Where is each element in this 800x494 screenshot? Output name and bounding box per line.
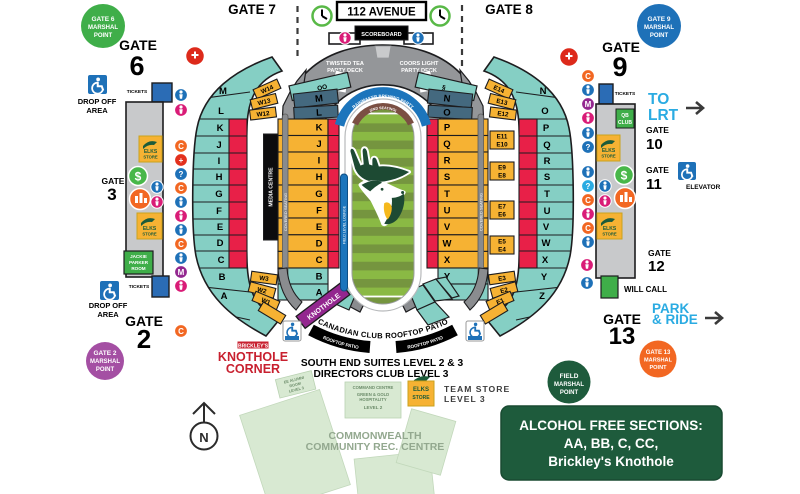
svg-text:T: T xyxy=(444,189,450,200)
svg-text:Y: Y xyxy=(541,272,548,283)
svg-text:S: S xyxy=(544,172,550,183)
svg-text:LEVEL 3: LEVEL 3 xyxy=(444,394,486,404)
svg-text:ROOM: ROOM xyxy=(131,266,145,271)
svg-text:N: N xyxy=(199,430,208,445)
svg-text:G: G xyxy=(315,189,322,200)
svg-text:C: C xyxy=(218,255,225,266)
svg-text:V: V xyxy=(444,222,451,233)
svg-text:2: 2 xyxy=(137,324,151,354)
svg-text:O: O xyxy=(443,107,451,118)
svg-text:M: M xyxy=(314,93,323,105)
svg-text:COMMAND CENTRE: COMMAND CENTRE xyxy=(353,385,394,390)
svg-text:FIELD: FIELD xyxy=(560,373,579,380)
svg-text:GATE 7: GATE 7 xyxy=(228,2,276,17)
svg-text:GATE: GATE xyxy=(646,165,669,175)
svg-text:U: U xyxy=(444,205,451,216)
svg-text:TO: TO xyxy=(648,91,669,108)
svg-text:T: T xyxy=(544,189,550,200)
svg-text:F: F xyxy=(216,206,222,217)
svg-text:GATE 9: GATE 9 xyxy=(648,16,671,23)
svg-text:DROP OFF: DROP OFF xyxy=(78,97,117,106)
svg-text:MEDIA CENTRE: MEDIA CENTRE xyxy=(269,167,275,207)
svg-text:ELKS: ELKS xyxy=(413,387,429,393)
svg-text:$: $ xyxy=(621,169,628,183)
svg-text:POINT: POINT xyxy=(96,367,115,373)
svg-text:WILL CALL: WILL CALL xyxy=(624,285,667,294)
svg-text:H: H xyxy=(316,172,323,183)
svg-text:Brickley's Knothole: Brickley's Knothole xyxy=(548,454,674,469)
svg-text:A: A xyxy=(221,291,228,302)
svg-text:GATE: GATE xyxy=(646,125,669,135)
svg-text:TICKETS: TICKETS xyxy=(129,284,150,290)
svg-text:TEAM STORE: TEAM STORE xyxy=(444,384,510,394)
svg-text:K: K xyxy=(316,123,323,134)
svg-text:C: C xyxy=(178,327,184,336)
svg-text:TICKETS: TICKETS xyxy=(127,89,148,95)
svg-text:POINT: POINT xyxy=(650,33,669,39)
svg-text:TWISTED TEA: TWISTED TEA xyxy=(326,61,364,67)
svg-text:LRT: LRT xyxy=(648,107,679,124)
svg-text:E6: E6 xyxy=(498,212,506,219)
svg-text:SCOREBOARD: SCOREBOARD xyxy=(361,32,401,38)
svg-text:GATE 13: GATE 13 xyxy=(646,350,671,356)
svg-text:Q: Q xyxy=(443,139,450,150)
svg-text:112 AVENUE: 112 AVENUE xyxy=(347,7,416,19)
svg-text:E9: E9 xyxy=(498,165,506,172)
svg-text:COVERED SEATING: COVERED SEATING xyxy=(283,193,288,231)
svg-text:& RIDE: & RIDE xyxy=(652,312,698,327)
svg-text:G: G xyxy=(215,189,222,200)
svg-text:S: S xyxy=(444,172,450,183)
svg-text:E4: E4 xyxy=(498,247,506,254)
svg-text:MARSHAL: MARSHAL xyxy=(88,25,118,31)
svg-text:B: B xyxy=(316,271,323,282)
svg-text:STORE: STORE xyxy=(602,232,617,237)
svg-text:V: V xyxy=(543,222,550,233)
svg-text:W: W xyxy=(542,238,551,249)
svg-text:J: J xyxy=(316,139,321,150)
svg-text:K: K xyxy=(217,123,224,134)
svg-text:AREA: AREA xyxy=(97,310,119,319)
svg-text:AREA: AREA xyxy=(86,106,108,115)
svg-text:E7: E7 xyxy=(498,204,506,211)
svg-text:JACKIE: JACKIE xyxy=(130,254,147,259)
svg-text:CORNER: CORNER xyxy=(226,362,280,376)
svg-text:R: R xyxy=(544,156,551,167)
svg-text:H: H xyxy=(216,172,223,183)
svg-text:MARSHAL: MARSHAL xyxy=(644,358,673,364)
svg-text:POINT: POINT xyxy=(94,33,113,39)
svg-text:BRICKLEY'S: BRICKLEY'S xyxy=(238,344,269,350)
svg-text:J: J xyxy=(216,140,221,151)
svg-text:MARSHAL: MARSHAL xyxy=(554,382,584,388)
svg-text:DROP OFF: DROP OFF xyxy=(89,301,128,310)
svg-text:L: L xyxy=(218,106,224,117)
svg-text:I: I xyxy=(218,156,221,167)
svg-text:ALCOHOL FREE SECTIONS:: ALCOHOL FREE SECTIONS: xyxy=(519,418,703,433)
svg-text:QB: QB xyxy=(621,113,629,119)
svg-text:Q: Q xyxy=(543,140,550,151)
svg-text:COORS LIGHT: COORS LIGHT xyxy=(400,61,439,67)
svg-text:13: 13 xyxy=(609,323,636,350)
svg-text:GATE 6: GATE 6 xyxy=(92,16,115,23)
svg-text:COVERED SEATING: COVERED SEATING xyxy=(479,193,484,231)
svg-text:ELEVATOR: ELEVATOR xyxy=(686,184,721,191)
svg-text:E3: E3 xyxy=(498,275,507,283)
svg-text:N: N xyxy=(443,93,451,105)
svg-text:STORE: STORE xyxy=(142,232,157,237)
svg-text:+: + xyxy=(179,156,184,165)
svg-text:C: C xyxy=(316,255,323,266)
svg-text:D: D xyxy=(316,239,323,250)
svg-text:C: C xyxy=(178,184,184,193)
svg-text:?: ? xyxy=(586,143,591,152)
svg-text:GATE: GATE xyxy=(648,248,671,258)
svg-text:N: N xyxy=(540,86,547,97)
svg-text:L: L xyxy=(316,107,323,118)
svg-text:9: 9 xyxy=(612,52,627,82)
svg-text:MARSHAL: MARSHAL xyxy=(90,359,120,365)
svg-text:11: 11 xyxy=(646,176,662,193)
svg-text:SOUTH END SUITES LEVEL 2 & 3: SOUTH END SUITES LEVEL 2 & 3 xyxy=(301,358,464,369)
svg-text:F: F xyxy=(316,205,322,216)
svg-text:P: P xyxy=(543,123,550,134)
svg-text:X: X xyxy=(542,255,549,266)
svg-text:M: M xyxy=(585,100,592,109)
svg-text:M: M xyxy=(178,268,185,277)
svg-text:10: 10 xyxy=(646,136,663,153)
svg-text:D: D xyxy=(217,238,224,249)
svg-text:STORE: STORE xyxy=(601,154,616,159)
svg-text:MARSHAL: MARSHAL xyxy=(644,25,674,31)
svg-text:C: C xyxy=(178,240,184,249)
svg-text:E8: E8 xyxy=(498,173,506,180)
svg-text:12: 12 xyxy=(648,258,665,275)
svg-text:STORE: STORE xyxy=(143,155,158,160)
svg-text:C: C xyxy=(178,142,184,151)
svg-text:?: ? xyxy=(586,182,591,191)
svg-text:E10: E10 xyxy=(496,142,508,149)
svg-text:6: 6 xyxy=(129,51,144,81)
svg-text:GATE 2: GATE 2 xyxy=(94,350,117,357)
svg-text:PARKER: PARKER xyxy=(129,260,149,265)
svg-text:3: 3 xyxy=(107,185,116,204)
svg-text:?: ? xyxy=(179,170,184,179)
svg-text:C: C xyxy=(585,224,591,233)
svg-text:POINT: POINT xyxy=(560,390,579,396)
svg-text:C: C xyxy=(585,196,591,205)
svg-text:P: P xyxy=(444,123,451,134)
svg-text:STORE: STORE xyxy=(412,395,430,401)
svg-text:$: $ xyxy=(135,170,142,184)
svg-text:COMMUNITY REC. CENTRE: COMMUNITY REC. CENTRE xyxy=(306,441,445,453)
svg-text:R: R xyxy=(444,156,451,167)
svg-text:O: O xyxy=(541,106,548,117)
svg-text:HOSPITALITY: HOSPITALITY xyxy=(359,397,387,402)
svg-text:E5: E5 xyxy=(498,239,506,246)
svg-text:LEVEL 2: LEVEL 2 xyxy=(364,405,383,410)
svg-text:M: M xyxy=(219,86,227,97)
svg-text:GATE 8: GATE 8 xyxy=(485,2,533,17)
svg-text:E11: E11 xyxy=(497,134,508,141)
svg-text:X: X xyxy=(444,255,451,266)
svg-text:TICKETS: TICKETS xyxy=(615,91,636,97)
svg-text:W: W xyxy=(443,239,452,250)
svg-text:U: U xyxy=(544,206,551,217)
svg-text:B: B xyxy=(219,272,226,283)
svg-text:E12: E12 xyxy=(497,110,509,118)
svg-text:AA, BB, C, CC,: AA, BB, C, CC, xyxy=(564,436,659,451)
svg-text:POINT: POINT xyxy=(649,365,667,371)
svg-text:CLUB: CLUB xyxy=(618,120,632,126)
svg-text:W3: W3 xyxy=(259,275,270,283)
svg-text:C: C xyxy=(585,72,591,81)
svg-text:FIELD LEVEL LOUNGE: FIELD LEVEL LOUNGE xyxy=(343,205,347,244)
svg-text:Z: Z xyxy=(539,291,545,302)
svg-text:E: E xyxy=(217,222,223,233)
svg-text:E: E xyxy=(316,222,322,233)
svg-text:I: I xyxy=(318,156,321,167)
